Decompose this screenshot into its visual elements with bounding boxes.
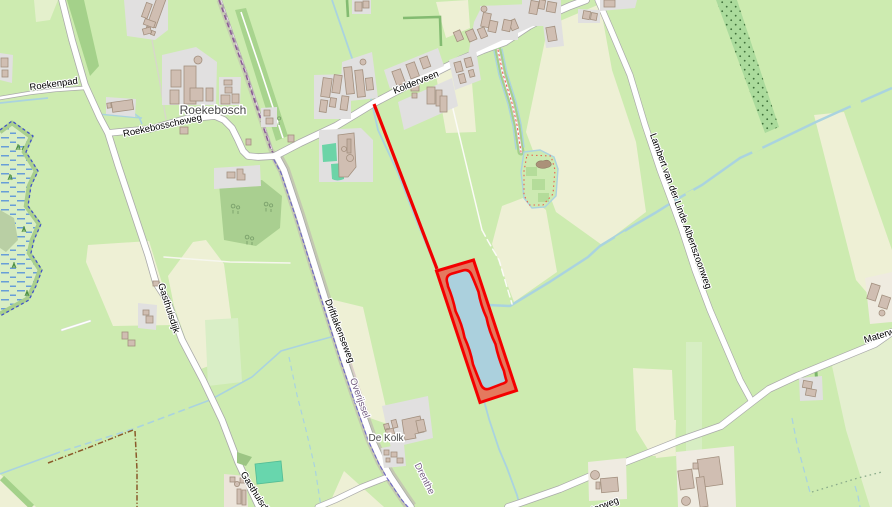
svg-text:De Kolk: De Kolk [368,433,404,444]
svg-text:Roekebosch: Roekebosch [180,103,247,117]
